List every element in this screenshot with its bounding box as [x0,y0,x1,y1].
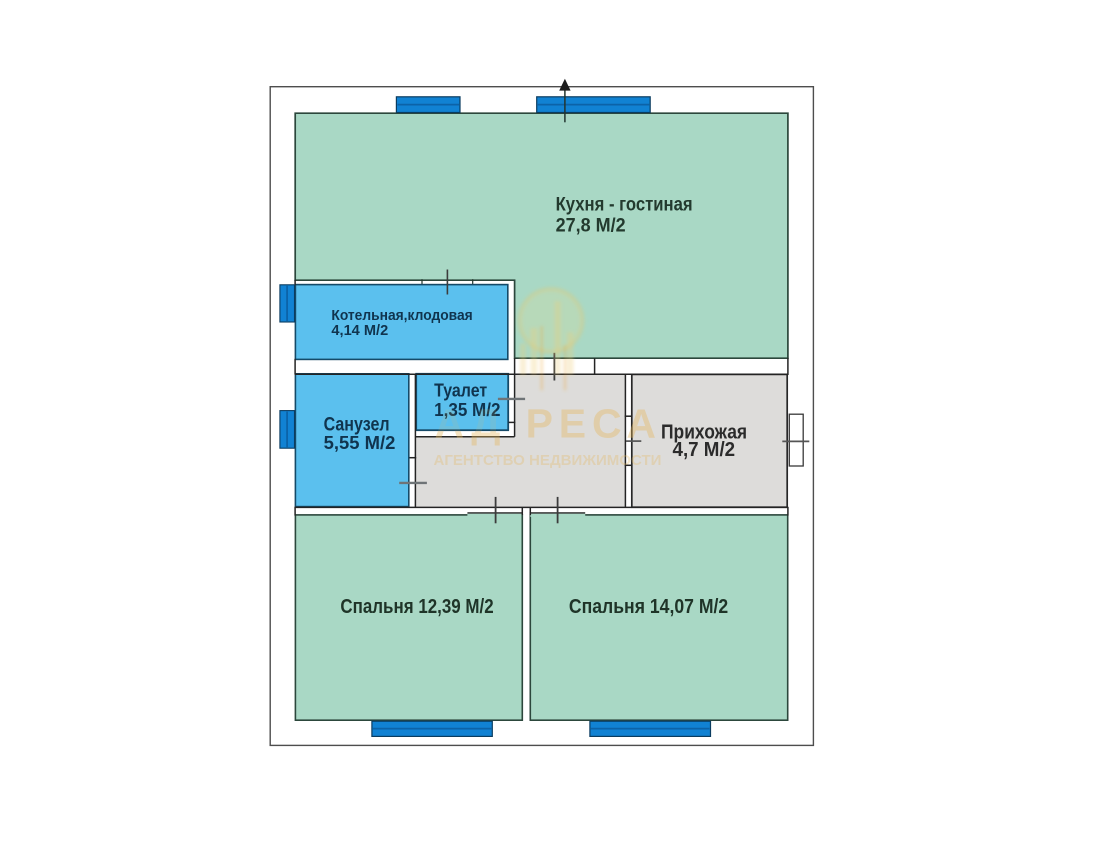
svg-text:Спальня 12,39 М/2: Спальня 12,39 М/2 [340,596,493,618]
svg-text:27,8 М/2: 27,8 М/2 [556,216,626,237]
svg-text:5,55 М/2: 5,55 М/2 [324,432,396,453]
svg-text:Спальня 14,07 М/2: Спальня 14,07 М/2 [569,596,728,618]
svg-text:4,14 М/2: 4,14 М/2 [331,322,388,339]
svg-text:4,7 М/2: 4,7 М/2 [673,439,736,461]
svg-text:Туалет: Туалет [434,380,487,400]
svg-text:Кухня - гостиная: Кухня - гостиная [556,195,693,216]
svg-text:АГЕНТСТВО НЕДВИЖИМОСТИ: АГЕНТСТВО НЕДВИЖИМОСТИ [434,452,662,469]
